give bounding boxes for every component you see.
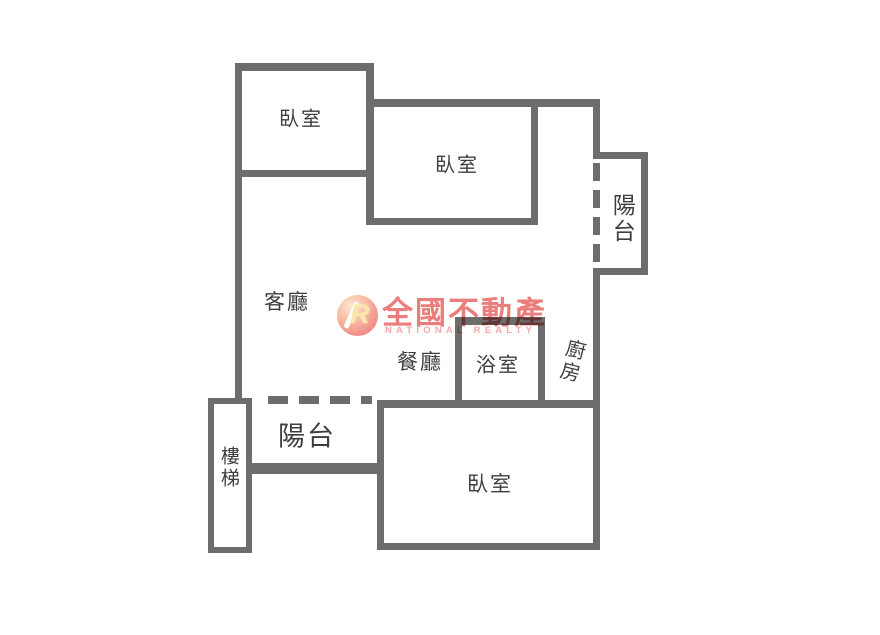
door-balcony-right-dashed — [593, 163, 600, 264]
room-label-bedroom-bottom: 臥室 — [467, 473, 513, 497]
wall-bedroom2-bottom — [368, 218, 538, 225]
wall-bathroom-top — [455, 317, 545, 325]
wall-balcony-right-top — [593, 152, 648, 159]
logo-letter: R — [350, 299, 370, 330]
brand-logo-icon: R — [337, 295, 378, 336]
wall-right-outer-upper — [593, 99, 600, 156]
logo-slash-icon — [344, 301, 359, 328]
wall-bedroom1-bottom — [235, 170, 374, 177]
wall-bedroom3-bottom — [377, 543, 600, 550]
wall-bedroom3-left — [377, 400, 384, 550]
room-label-bedroom-top-right: 臥室 — [435, 155, 479, 178]
room-label-dining-room: 餐廳 — [397, 351, 443, 375]
wall-bedroom1-top — [235, 63, 374, 71]
floor-plan-image: 臥室 臥室 陽台 客廳 餐廳 浴室 廚房 陽台 樓梯 臥室 R 全國不動產 NA… — [0, 0, 880, 635]
wall-balcony-right-bottom — [593, 268, 648, 275]
realty-watermark: R 全國不動產 NATIONAL REALTY — [0, 0, 880, 635]
room-label-balcony-right: 陽台 — [609, 193, 635, 245]
wall-bathroom-right — [538, 317, 545, 408]
wall-bedroom1-right — [366, 63, 374, 225]
room-label-stairs: 樓梯 — [217, 446, 239, 490]
wall-balcony-right-outer — [641, 152, 648, 275]
room-label-kitchen: 廚房 — [553, 336, 586, 386]
room-label-bathroom: 浴室 — [476, 355, 520, 378]
wall-left-outer — [235, 63, 242, 402]
wall-bedroom2-top — [368, 99, 600, 107]
wall-bedroom3-top — [377, 400, 600, 408]
brand-name-text: 全國不動產 — [382, 288, 547, 333]
wall-right-outer-lower — [593, 268, 600, 550]
room-label-bedroom-top-left: 臥室 — [279, 109, 323, 132]
room-label-balcony-bottom: 陽台 — [278, 421, 336, 452]
wall-balcony-bottom-parapet — [250, 463, 382, 474]
wall-bedroom2-right — [531, 99, 538, 225]
room-label-living-room: 客廳 — [264, 291, 310, 315]
door-balcony-bottom-dashed — [268, 396, 372, 404]
wall-bathroom-left — [455, 317, 462, 408]
